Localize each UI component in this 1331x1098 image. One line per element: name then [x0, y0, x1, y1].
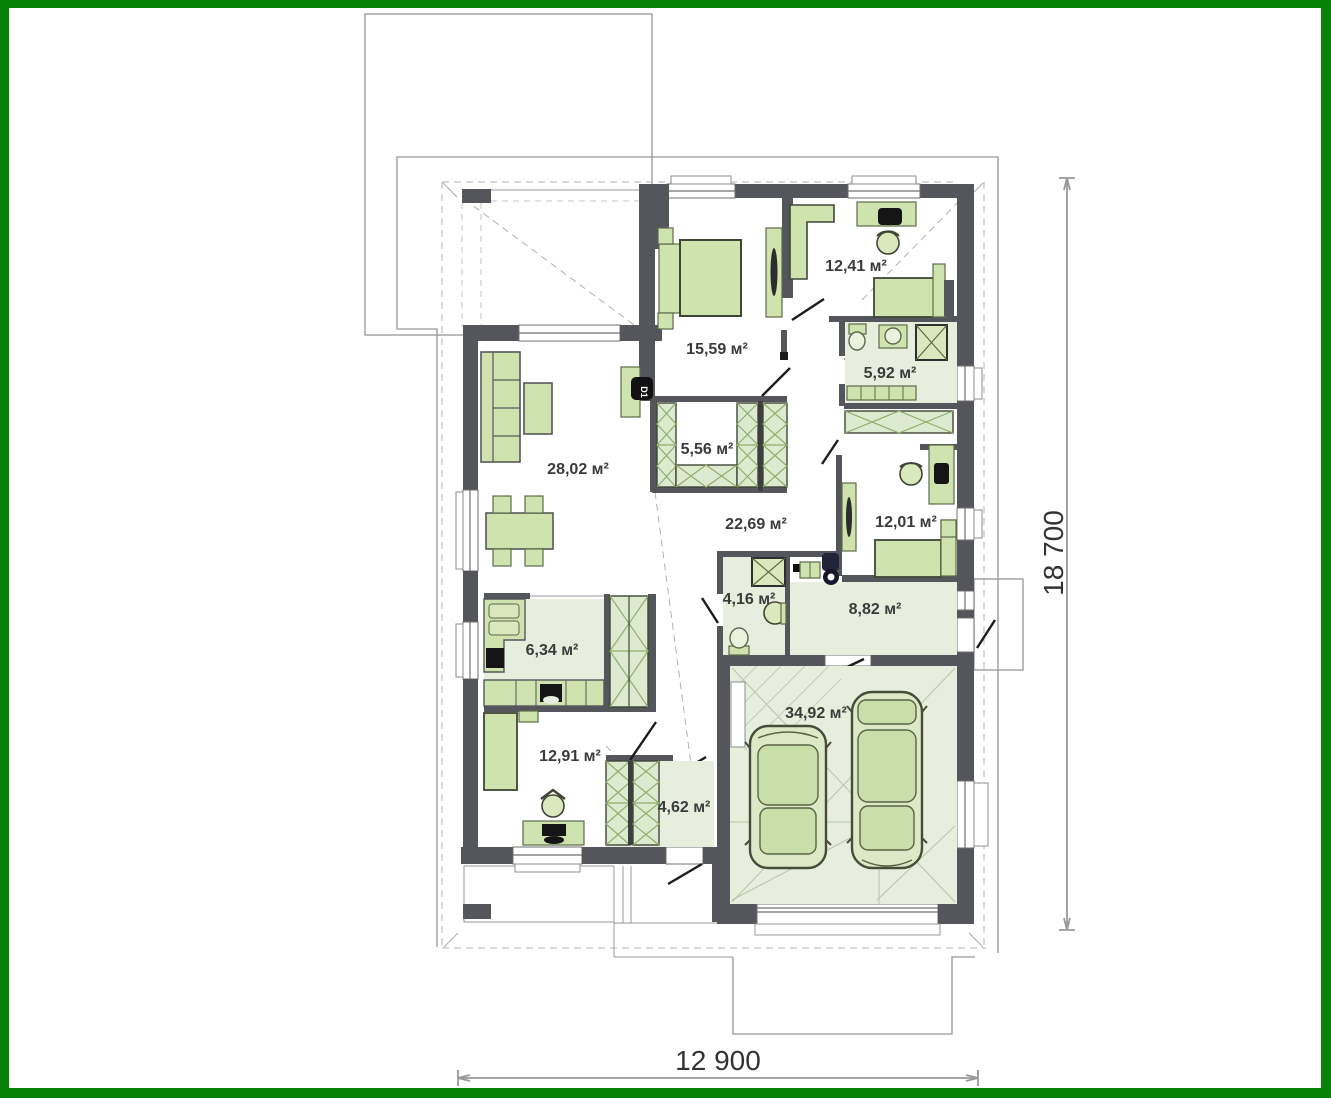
svg-text:18 700: 18 700: [1038, 510, 1069, 596]
svg-text:4,62 м²: 4,62 м²: [658, 799, 711, 816]
svg-text:12,91 м²: 12,91 м²: [539, 748, 601, 765]
svg-text:12,41 м²: 12,41 м²: [825, 258, 887, 275]
svg-text:34,92 м²: 34,92 м²: [785, 705, 847, 722]
svg-text:28,02 м²: 28,02 м²: [547, 461, 609, 478]
svg-text:22,69 м²: 22,69 м²: [725, 516, 787, 533]
svg-text:6,34 м²: 6,34 м²: [526, 642, 579, 659]
svg-text:15,59 м²: 15,59 м²: [686, 341, 748, 358]
svg-text:5,92 м²: 5,92 м²: [864, 365, 917, 382]
svg-text:12 900: 12 900: [675, 1045, 761, 1076]
svg-text:12,01 м²: 12,01 м²: [875, 514, 937, 531]
svg-text:4,16 м²: 4,16 м²: [723, 591, 776, 608]
svg-text:5,56 м²: 5,56 м²: [681, 441, 734, 458]
svg-text:8,82 м²: 8,82 м²: [849, 601, 902, 618]
svg-text:D1: D1: [639, 386, 649, 398]
